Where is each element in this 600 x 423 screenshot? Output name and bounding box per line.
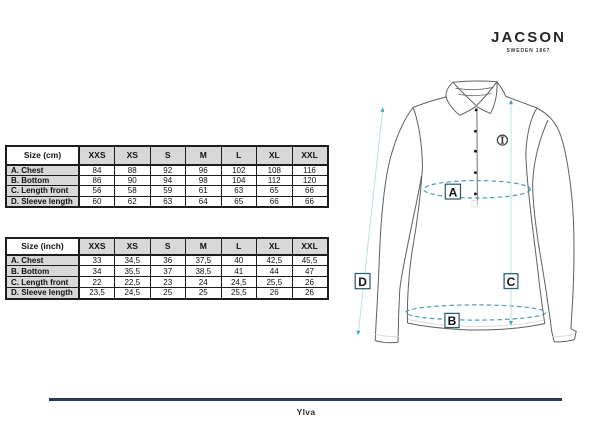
svg-text:B: B <box>448 314 457 328</box>
svg-text:D: D <box>358 275 367 289</box>
svg-text:C: C <box>507 275 516 289</box>
svg-text:A: A <box>449 185 458 199</box>
